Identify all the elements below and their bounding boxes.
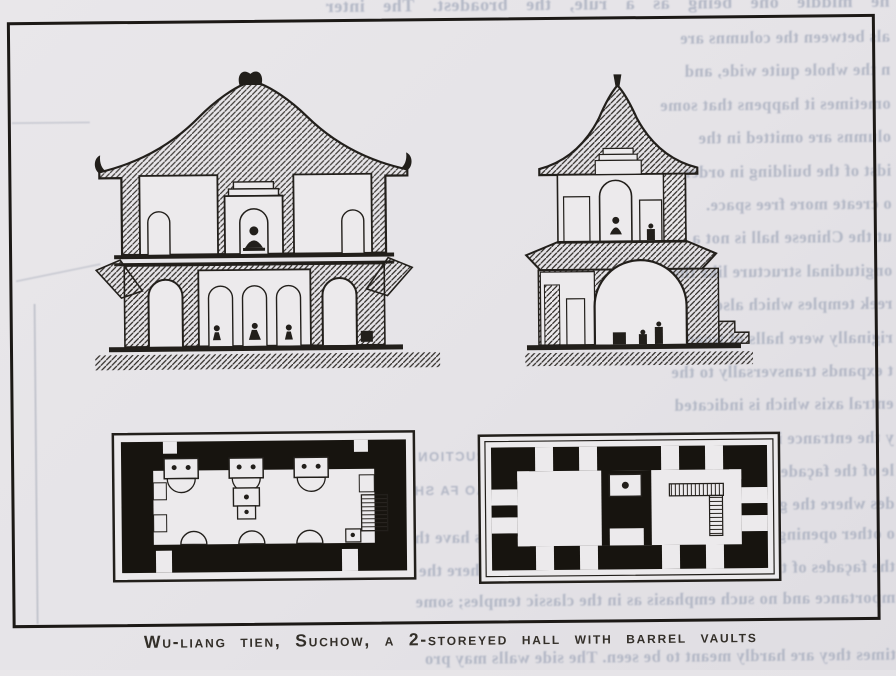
left-cross-section-drawing [92, 60, 455, 375]
right-cross-section-drawing [522, 69, 753, 367]
right-floor-plan-drawing [473, 431, 788, 588]
scanned-book-page: { "figure": { "caption": "Wu-liang tien,… [0, 0, 896, 670]
scan-rotation-wrapper: he middle one being as a rule, the broad… [0, 0, 896, 674]
left-floor-plan-drawing [111, 428, 420, 585]
